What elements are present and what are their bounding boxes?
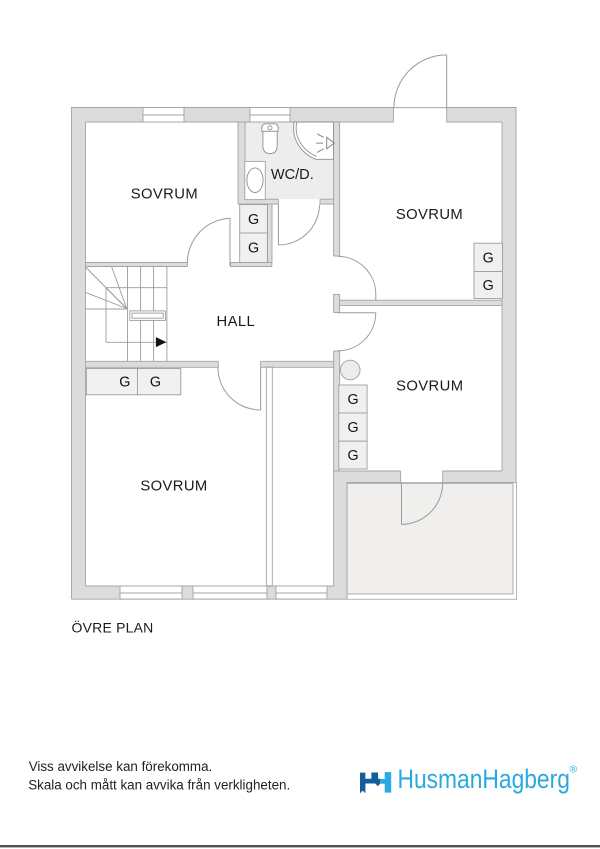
svg-text:G: G [150,375,161,391]
svg-text:SOVRUM: SOVRUM [131,186,198,202]
svg-text:G: G [248,212,259,228]
svg-text:Skala och mått kan avvika från: Skala och mått kan avvika från verklighe… [28,777,290,792]
svg-text:SOVRUM: SOVRUM [396,207,463,223]
svg-text:WC/D.: WC/D. [271,167,314,183]
svg-text:SOVRUM: SOVRUM [396,378,463,394]
svg-text:ÖVRE PLAN: ÖVRE PLAN [72,618,154,635]
svg-text:G: G [119,375,130,391]
svg-text:Viss avvikelse kan förekomma.: Viss avvikelse kan förekomma. [29,759,213,774]
svg-text:®: ® [570,764,578,776]
svg-text:G: G [347,420,358,436]
svg-text:G: G [248,241,259,257]
svg-text:G: G [483,278,494,294]
svg-text:SOVRUM: SOVRUM [140,478,207,494]
svg-text:G: G [483,251,494,267]
svg-text:HusmanHagberg: HusmanHagberg [398,764,570,794]
svg-text:G: G [347,448,358,464]
svg-text:HALL: HALL [216,314,255,330]
svg-text:G: G [347,392,358,408]
